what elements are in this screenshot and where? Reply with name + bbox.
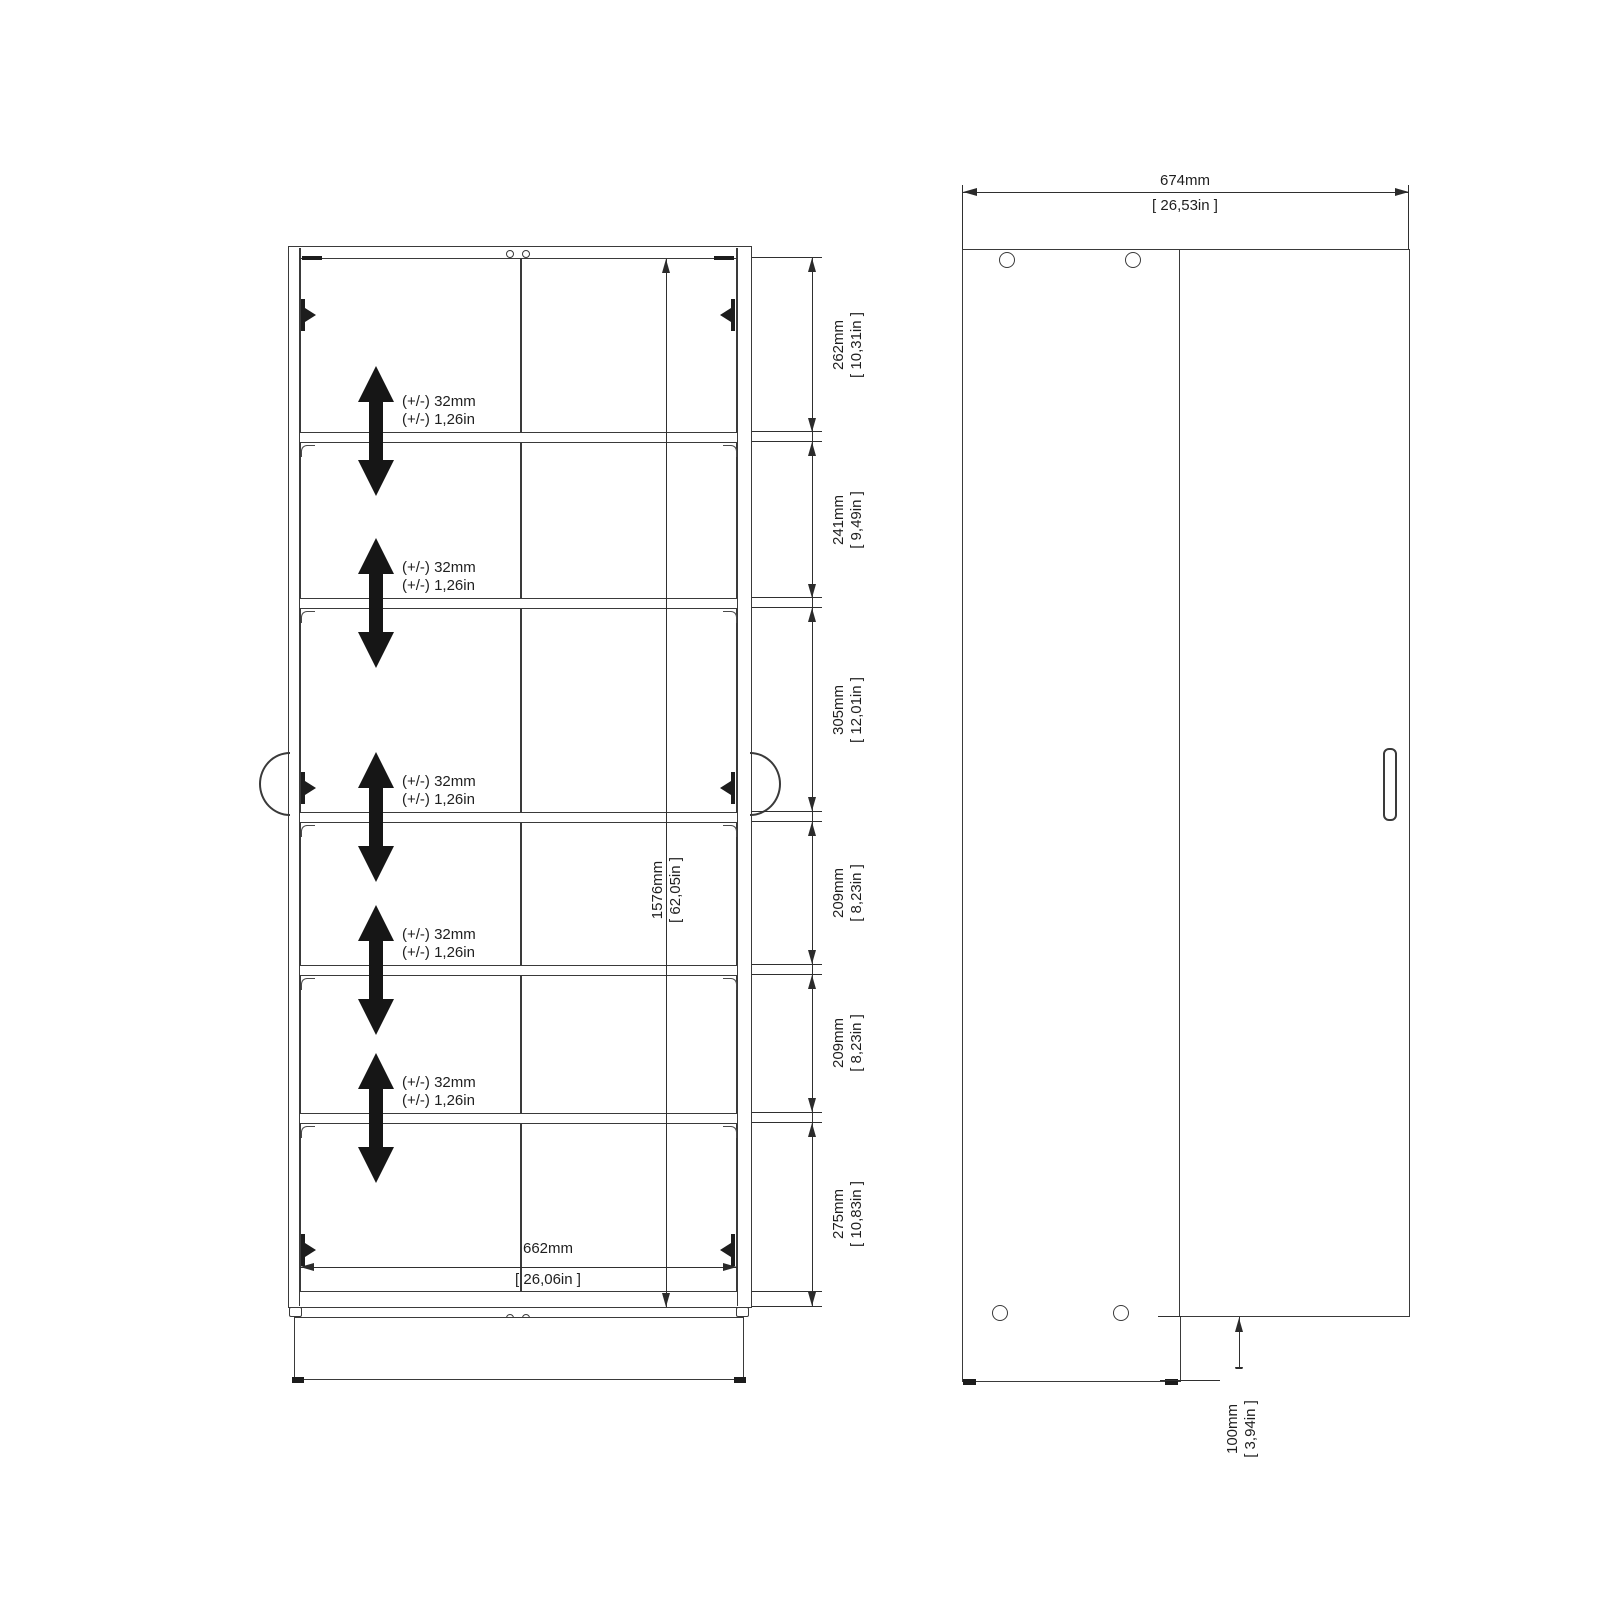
dowel-hole [522,250,530,258]
dim-section-mm: 209mm [830,868,848,918]
top-right-bracket [714,256,734,260]
cam-hole [992,1305,1008,1321]
hinge-icon [305,781,316,795]
dim-clearance-label: 100mm [ 3,94in ] [1220,1369,1264,1489]
front-plinth [294,1317,744,1380]
dim-arrow-icon [808,822,816,836]
dim-section-3-label: 305mm [ 12,01in ] [828,635,868,785]
dim-section-6-label: 275mm [ 10,83in ] [828,1139,868,1289]
dim-inner-width-inch: [ 26,06in ] [458,1271,638,1289]
shelf-adjust-label: (+/-) 32mm (+/-) 1,26in [402,559,476,595]
foot [734,1377,746,1383]
shelf-adjust-mm: (+/-) 32mm [402,773,476,791]
dim-section-inch: [ 10,31in ] [848,312,866,378]
dim-section-inch: [ 9,49in ] [848,491,866,549]
dim-line-side-width [962,192,1409,193]
corner-seam [301,1126,315,1138]
dim-arrow-icon [808,608,816,622]
corner-seam [301,978,315,990]
edge-cap [289,1307,302,1317]
shelf-adjust-arrow-icon [356,366,396,496]
dim-section-mm: 305mm [830,685,848,735]
corner-seam [723,1126,737,1138]
dim-total-height-inch: [ 62,05in ] [667,857,685,923]
dim-arrow-icon [808,797,816,811]
hinge-icon [731,1234,735,1266]
corner-seam [723,445,737,457]
bottom-panel [300,1291,737,1307]
side-panel [962,249,1181,1382]
dim-section-1-label: 262mm [ 10,31in ] [828,270,868,420]
dim-total-height-mm: 1576mm [649,861,667,919]
cam-hole [1113,1305,1129,1321]
dim-line-inner-width [300,1267,737,1268]
side-door-panel [1179,249,1410,1317]
dim-arrow-icon [1235,1318,1243,1332]
dim-clearance-mm: 100mm [1224,1404,1242,1454]
shelf-adjust-inch: (+/-) 1,26in [402,1092,476,1110]
foot [292,1377,304,1383]
dim-inner-width-mm: 662mm [458,1240,638,1258]
dim-arrow-icon [300,1263,314,1271]
shelf-adjust-arrow-icon [356,752,396,882]
shelf-adjust-inch: (+/-) 1,26in [402,791,476,809]
shelf-adjust-inch: (+/-) 1,26in [402,411,476,429]
foot [963,1379,976,1385]
shelf-adjust-inch: (+/-) 1,26in [402,944,476,962]
dim-section-mm: 275mm [830,1189,848,1239]
corner-seam [723,978,737,990]
shelf-adjust-arrow-icon [356,1053,396,1183]
dim-total-height-label: 1576mm [ 62,05in ] [649,815,685,965]
shelf-adjust-mm: (+/-) 32mm [402,393,476,411]
dim-arrow-icon [963,188,977,196]
dim-section-inch: [ 10,83in ] [848,1181,866,1247]
front-top-panel-line [300,258,736,259]
shelf-adjust-mm: (+/-) 32mm [402,559,476,577]
top-left-bracket [302,256,322,260]
dim-section-mm: 262mm [830,320,848,370]
corner-seam [723,611,737,623]
dim-section-inch: [ 8,23in ] [848,1014,866,1072]
cam-hole [999,252,1015,268]
dim-line-total-height [666,259,667,1307]
shelf-adjust-inch: (+/-) 1,26in [402,577,476,595]
dim-section-5-label: 209mm [ 8,23in ] [828,968,868,1118]
shelf-adjust-arrow-icon [356,538,396,668]
cam-hole [1125,252,1141,268]
hinge-icon [731,299,735,331]
dim-section-4-label: 209mm [ 8,23in ] [828,818,868,968]
dim-section-mm: 241mm [830,495,848,545]
front-right-door-edge [736,248,738,1306]
corner-seam [723,825,737,837]
shelf-adjust-label: (+/-) 32mm (+/-) 1,26in [402,926,476,962]
hinge-icon [305,308,316,322]
dim-arrow-icon [808,584,816,598]
dim-arrow-icon [808,1292,816,1306]
hinge-icon [731,772,735,804]
dim-arrow-icon [808,975,816,989]
dim-arrow-icon [808,442,816,456]
dim-section-inch: [ 12,01in ] [848,677,866,743]
ext-line [1158,1316,1182,1317]
dim-clearance-inch: [ 3,94in ] [1242,1400,1260,1458]
dim-line-sections [812,258,813,1307]
dim-arrow-icon [808,1098,816,1112]
shelf-adjust-arrow-icon [356,905,396,1035]
dim-section-mm: 209mm [830,1018,848,1068]
hinge-icon [720,1243,731,1257]
dim-arrow-icon [1395,188,1409,196]
dim-side-width-inch: [ 26,53in ] [1085,197,1285,215]
edge-cap [736,1307,749,1317]
corner-seam [301,825,315,837]
corner-seam [301,445,315,457]
dim-section-inch: [ 8,23in ] [848,864,866,922]
hinge-icon [720,781,731,795]
dim-arrow-icon [808,258,816,272]
dim-arrow-icon [808,418,816,432]
shelf-adjust-mm: (+/-) 32mm [402,926,476,944]
shelf-adjust-mm: (+/-) 32mm [402,1074,476,1092]
door-handle-icon [1383,748,1397,821]
technical-drawing-canvas: (+/-) 32mm (+/-) 1,26in (+/-) 32mm (+/-)… [0,0,1600,1600]
hinge-icon [720,308,731,322]
shelf-adjust-label: (+/-) 32mm (+/-) 1,26in [402,773,476,809]
dim-arrow-icon [808,950,816,964]
dowel-hole [506,250,514,258]
dim-arrow-icon [723,1263,737,1271]
shelf-adjust-label: (+/-) 32mm (+/-) 1,26in [402,393,476,429]
front-door-gap-line [520,259,522,1307]
corner-seam [301,611,315,623]
dim-arrow-icon [662,259,670,273]
dim-section-2-label: 241mm [ 9,49in ] [828,445,868,595]
dim-arrow-icon [662,1293,670,1307]
hinge-icon [305,1243,316,1257]
dim-side-width-mm: 674mm [1085,172,1285,190]
shelf-adjust-label: (+/-) 32mm (+/-) 1,26in [402,1074,476,1110]
dim-arrow-icon [808,1123,816,1137]
